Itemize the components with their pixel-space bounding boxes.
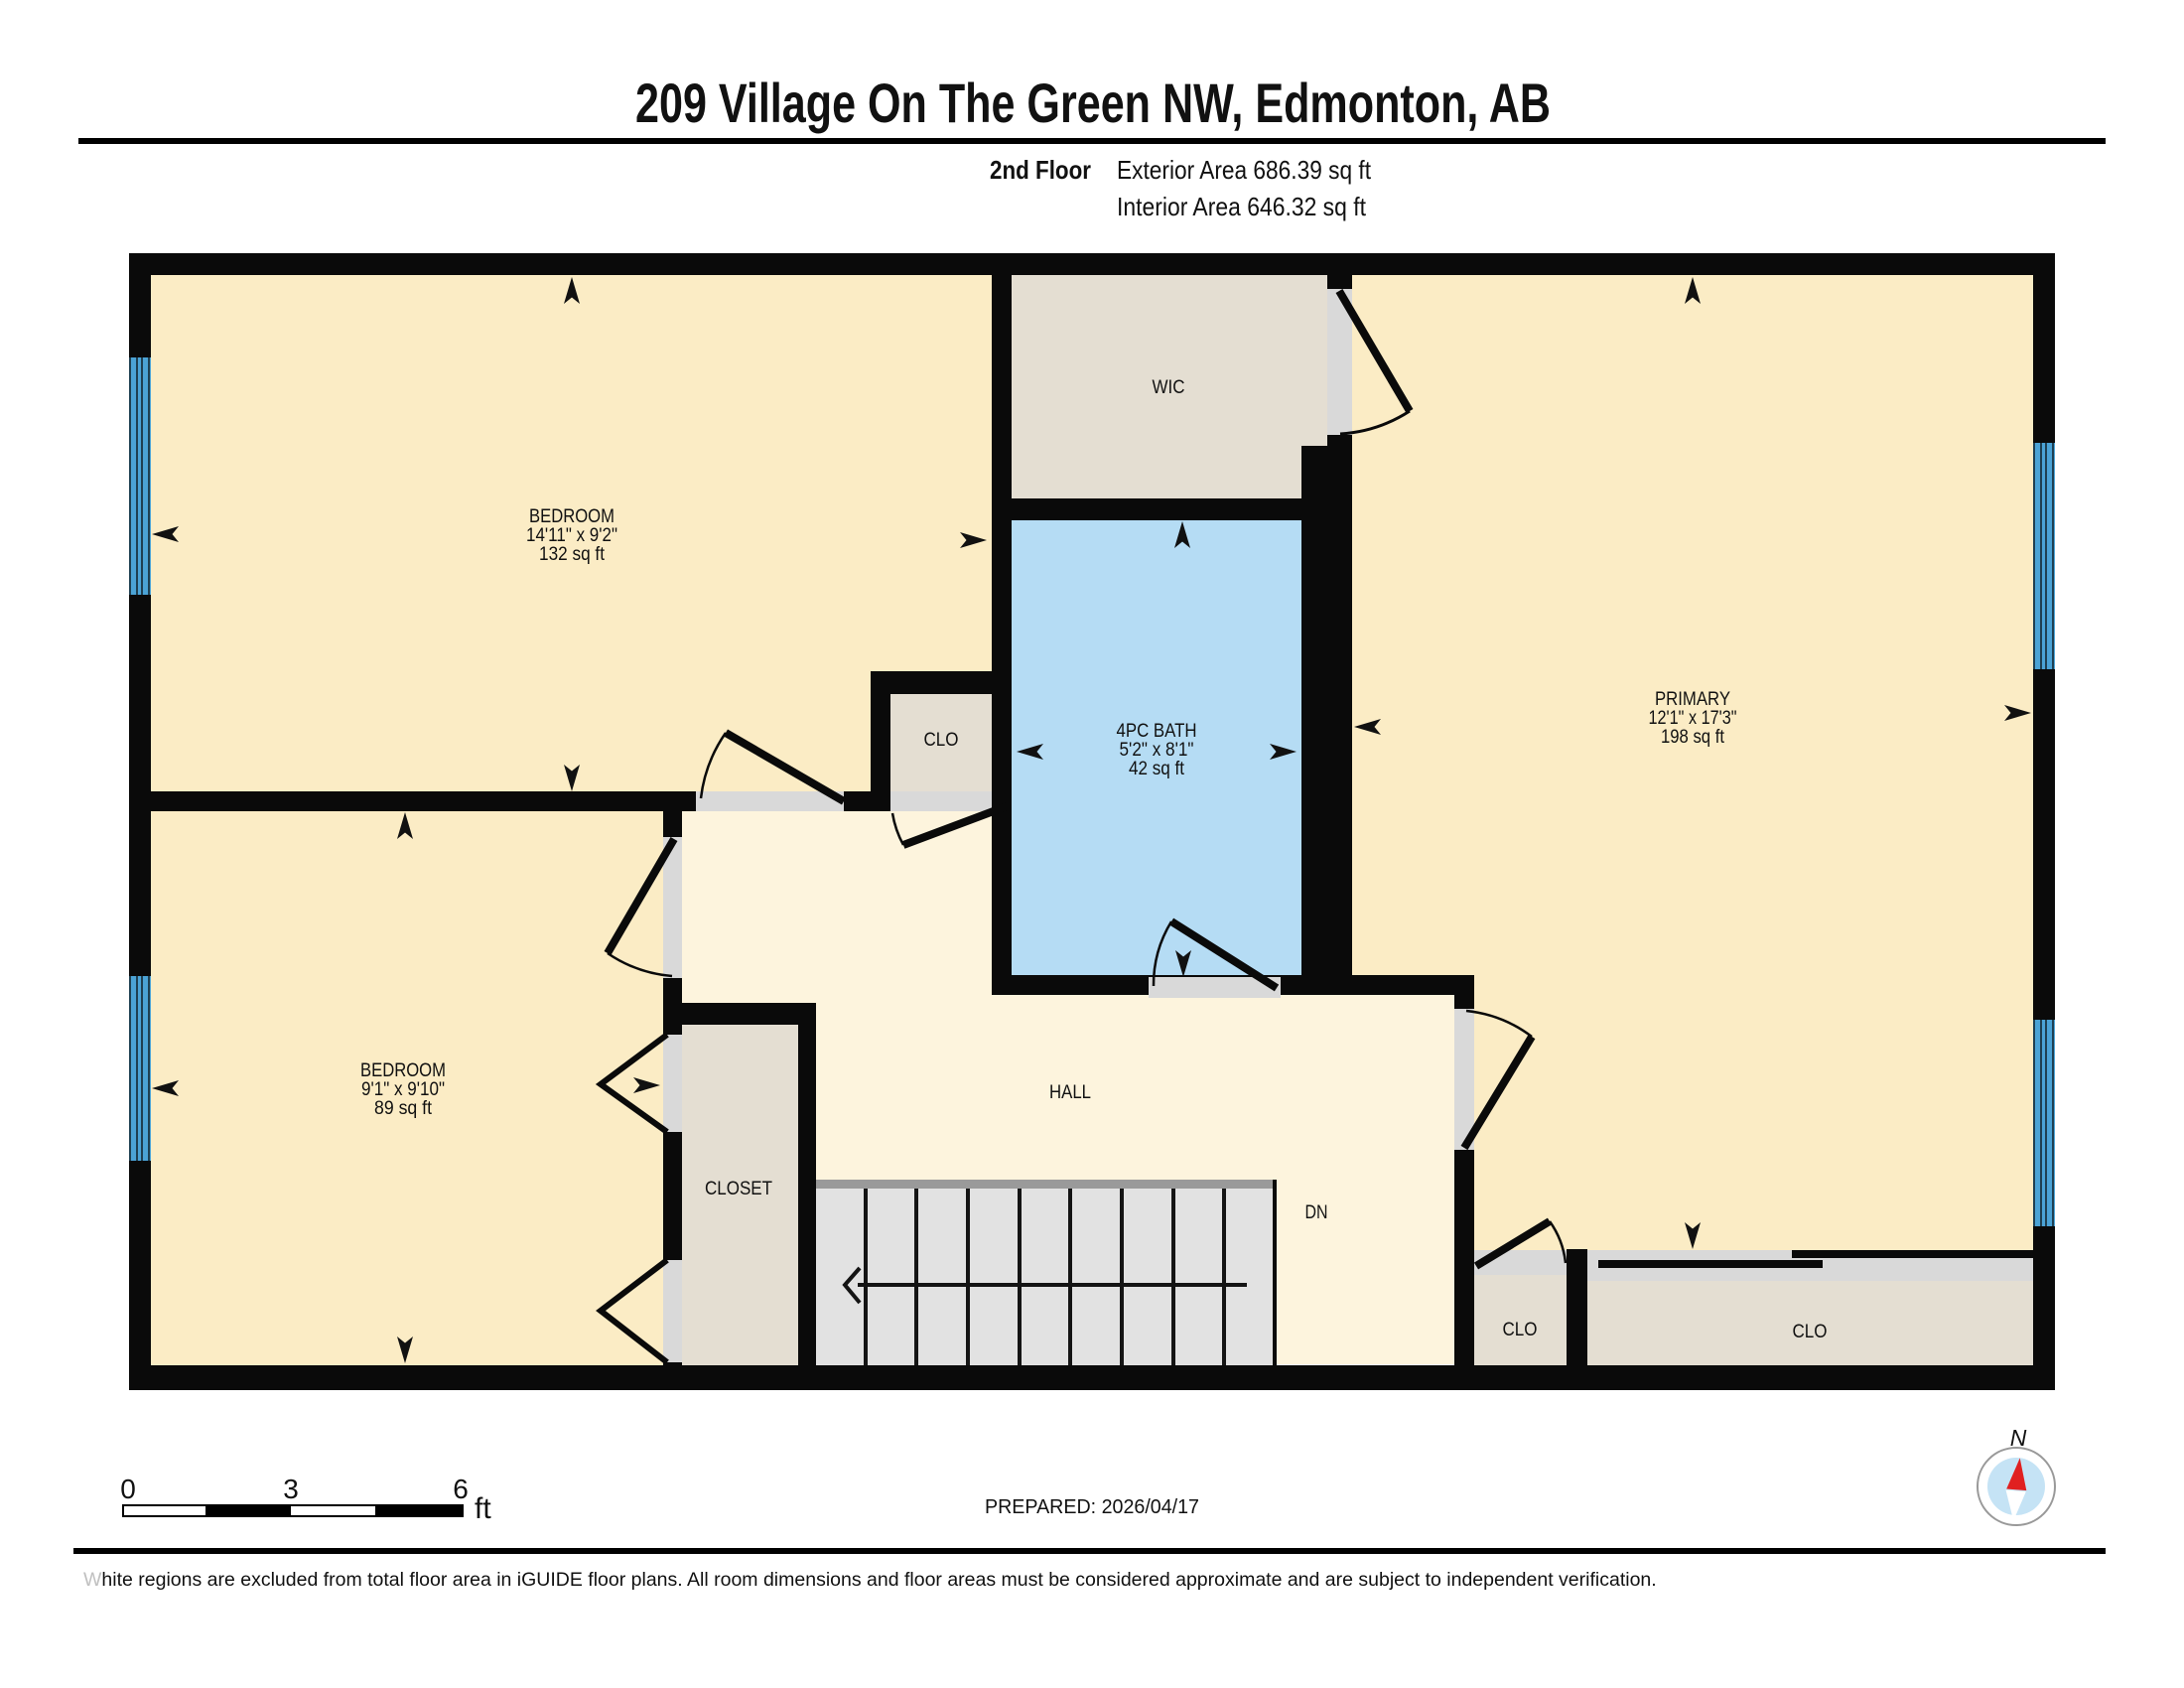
- svg-text:2nd Floor: 2nd Floor: [990, 155, 1091, 185]
- svg-text:42 sq ft: 42 sq ft: [1129, 759, 1185, 779]
- svg-text:5'2" x 8'1": 5'2" x 8'1": [1120, 740, 1194, 761]
- svg-text:Interior Area 646.32 sq ft: Interior Area 646.32 sq ft: [1117, 192, 1367, 221]
- svg-text:0: 0: [120, 1474, 136, 1504]
- svg-text:CLO: CLO: [924, 730, 959, 751]
- svg-text:BEDROOM: BEDROOM: [529, 506, 614, 527]
- svg-text:198 sq ft: 198 sq ft: [1661, 727, 1725, 748]
- svg-text:89 sq ft: 89 sq ft: [374, 1098, 433, 1119]
- svg-text:3: 3: [283, 1474, 299, 1504]
- svg-text:HALL: HALL: [1049, 1082, 1091, 1103]
- svg-text:ft: ft: [475, 1492, 491, 1525]
- svg-text:N: N: [2010, 1425, 2027, 1451]
- svg-text:209 Village On The Green NW, E: 209 Village On The Green NW, Edmonton, A…: [635, 71, 1551, 134]
- svg-text:DN: DN: [1305, 1202, 1328, 1223]
- svg-text:4PC BATH: 4PC BATH: [1117, 721, 1197, 742]
- svg-text:CLO: CLO: [1793, 1322, 1828, 1342]
- svg-text:PRIMARY: PRIMARY: [1655, 689, 1730, 710]
- svg-text:PREPARED: 2026/04/17: PREPARED: 2026/04/17: [985, 1496, 1199, 1518]
- svg-text:Exterior Area 686.39 sq ft: Exterior Area 686.39 sq ft: [1117, 155, 1372, 185]
- svg-text:14'11" x 9'2": 14'11" x 9'2": [526, 525, 617, 546]
- svg-text:CLOSET: CLOSET: [705, 1179, 772, 1199]
- svg-text:9'1" x 9'10": 9'1" x 9'10": [361, 1079, 445, 1100]
- svg-text:CLO: CLO: [1503, 1320, 1538, 1340]
- svg-text:BEDROOM: BEDROOM: [360, 1060, 446, 1081]
- svg-text:WIC: WIC: [1153, 377, 1185, 398]
- svg-text:12'1" x 17'3": 12'1" x 17'3": [1649, 708, 1737, 729]
- svg-text:White regions are excluded fro: White regions are excluded from total fl…: [83, 1569, 1657, 1591]
- svg-text:132 sq ft: 132 sq ft: [539, 544, 606, 565]
- svg-text:6: 6: [453, 1474, 469, 1504]
